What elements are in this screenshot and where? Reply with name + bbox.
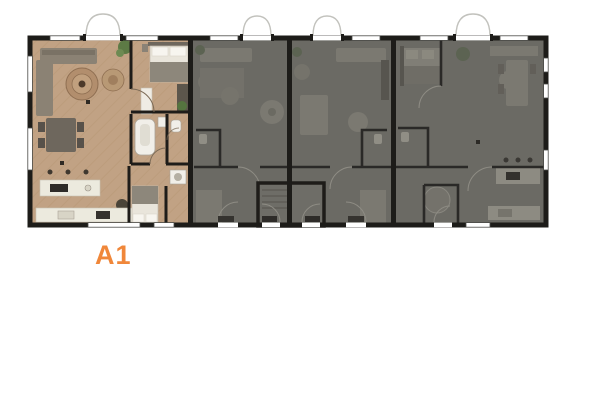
unit-a1-label[interactable]: A1 [95, 240, 132, 270]
dimmed-units [190, 38, 546, 226]
french-door-icon [240, 16, 274, 41]
floor-plan: A1 [0, 0, 600, 400]
french-door-icon [83, 14, 123, 41]
french-door-icon [310, 16, 344, 41]
floorplan-canvas: A1 [0, 0, 600, 400]
unit-a1[interactable] [30, 38, 190, 226]
french-door-icon [453, 14, 493, 41]
